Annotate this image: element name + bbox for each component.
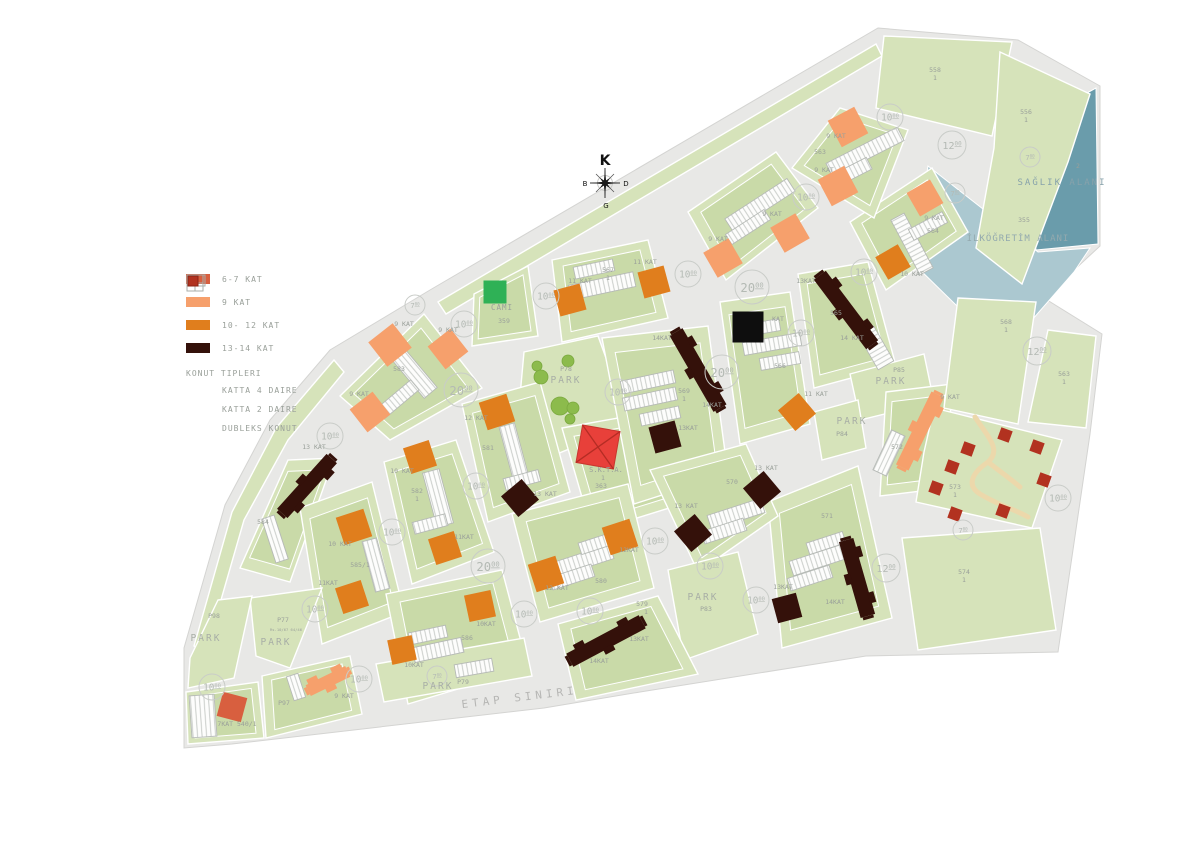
map-label: 580 [595, 577, 607, 585]
map-label: 581 [482, 444, 494, 452]
map-label: PARK [423, 681, 454, 692]
map-label: 568 [1000, 318, 1012, 326]
map-label: P77 [277, 616, 289, 624]
map-label: 13 KAT [302, 443, 326, 451]
map-label: 556 [1020, 108, 1032, 116]
map-label: 12 KAT [464, 414, 488, 422]
map-label: Rs.10/67 64/46 [270, 627, 303, 632]
map-label: P97 [278, 699, 290, 707]
map-label: 14KAT [589, 657, 609, 665]
building-skta [576, 425, 620, 469]
map-label: 1 [953, 491, 957, 499]
map-label: 574 [958, 568, 970, 576]
map-label: 12 KAT [545, 584, 569, 592]
tree-icon [551, 397, 569, 415]
map-label: 9 KAT [394, 320, 414, 328]
legend-konut-label: KATTA 4 DAIRE [222, 386, 298, 395]
legend-swatch [186, 343, 210, 353]
map-label: P84 [836, 430, 848, 438]
compass-D-label: D [623, 180, 628, 188]
legend-konut-item: DUBLEKS KONUT [186, 424, 336, 433]
master-plan-map: 1000120070070010002000100010001000700200… [0, 0, 1200, 850]
map-label: P98 [208, 612, 220, 620]
map-label: 13 KAT [754, 464, 778, 472]
map-label: 10 KAT [390, 467, 414, 475]
legend: 6-7 KAT9 KAT10- 12 KAT13-14 KAT KONUT TI… [186, 274, 336, 443]
legend-item: 6-7 KAT [186, 274, 336, 284]
map-label: 582 [411, 487, 423, 495]
map-label: P78 [560, 365, 572, 373]
building-mosque [484, 281, 507, 304]
map-label: 10 KAT [900, 270, 924, 278]
legend-konut-types: KATTA 4 DAIREKATTA 2 DAIREDUBLEKS KONUT [186, 386, 336, 433]
map-label: İLKÖĞRETİM ALANI [967, 232, 1070, 244]
building-kat1012 [464, 590, 496, 622]
map-label: S.K.T.A. [589, 466, 623, 474]
legend-item-label: 9 KAT [222, 298, 251, 307]
legend-konut-item: KATTA 2 DAIRE [186, 405, 336, 414]
map-label: 1 [415, 495, 419, 503]
map-label: 9 KAT [826, 132, 846, 140]
map-label: 14KAT [825, 598, 845, 606]
map-label: CAMI [491, 303, 513, 312]
map-label: 363 [595, 482, 607, 490]
map-label: 567 [602, 266, 614, 274]
legend-konut-label: KATTA 2 DAIRE [222, 405, 298, 414]
map-label: 566 [774, 362, 786, 370]
map-label: 14KAT [652, 334, 672, 342]
parcel-574 [902, 528, 1056, 650]
tree-icon [532, 361, 542, 371]
legend-item: 10- 12 KAT [186, 320, 336, 330]
map-label: 9 KAT [349, 390, 369, 398]
map-label: 13KAT [796, 277, 816, 285]
map-label: 9 KAT [762, 210, 782, 218]
map-label: 355 [1018, 216, 1030, 224]
map-label: 9 KAT [940, 393, 960, 401]
compass-B-label: B [583, 180, 588, 188]
map-label: 1 [606, 274, 610, 282]
map-label: 564 [927, 227, 939, 235]
map-label: 10KAT [404, 661, 424, 669]
map-label: 12KAT [619, 546, 639, 554]
legend-konut-label: DUBLEKS KONUT [222, 424, 298, 433]
map-label: PARK [837, 416, 868, 427]
map-label: 10 KAT [328, 540, 352, 548]
map-label: 13KAT [678, 424, 698, 432]
row-building [189, 694, 217, 738]
map-label: 13KAT [629, 635, 649, 643]
map-label: 563 [1058, 370, 1070, 378]
map-label: 9 KAT [334, 692, 354, 700]
legend-item: 13-14 KAT [186, 343, 336, 353]
legend-konut-title: KONUT TIPLERI [186, 369, 336, 378]
building-black [733, 312, 764, 343]
map-label: P85 [893, 366, 905, 374]
map-label: 13 KAT [533, 490, 557, 498]
tree-icon [534, 370, 548, 384]
map-label: 573 [949, 483, 961, 491]
legend-konut-item: KATTA 4 DAIRE [186, 386, 336, 395]
map-label: 1 [1062, 378, 1066, 386]
map-label: SAĞLIK ALANI [1017, 176, 1106, 188]
map-label: 11 KAT [804, 390, 828, 398]
map-label: 565 [830, 309, 842, 317]
legend-item: 9 KAT [186, 297, 336, 307]
map-label: 7KAT 540/1 [217, 720, 256, 728]
map-label: 2 [1076, 162, 1080, 170]
map-label: 1 [1004, 326, 1008, 334]
map-label: 1 [1024, 116, 1028, 124]
map-label: 572 [891, 443, 903, 451]
map-label: 10KAT [476, 620, 496, 628]
map-label: PARK [876, 376, 907, 387]
legend-item-label: 10- 12 KAT [222, 321, 280, 330]
legend-swatch [186, 320, 210, 330]
map-label: PARK [551, 375, 582, 386]
map-label: 1 [644, 608, 648, 616]
compass-G-label: G [603, 202, 608, 210]
map-label: 9 KAT [814, 166, 834, 174]
master-plan-canvas: 1000120070070010002000100010001000700200… [0, 0, 1200, 850]
map-label: 11KAT [318, 579, 338, 587]
map-label: PARK [261, 637, 292, 648]
legend-item-label: 13-14 KAT [222, 344, 274, 353]
map-label: 11 KAT [568, 277, 592, 285]
map-label: 558 [929, 66, 941, 74]
map-label: 571 [821, 512, 833, 520]
map-label: 569 [678, 387, 690, 395]
legend-item-label: 6-7 KAT [222, 275, 263, 284]
compass-K-label: K [600, 153, 612, 169]
map-label: 1 [682, 395, 686, 403]
tree-icon [567, 402, 579, 414]
legend-floor-categories: 6-7 KAT9 KAT10- 12 KAT13-14 KAT [186, 274, 336, 353]
map-label: 583 [393, 365, 405, 373]
map-label: PARK [191, 633, 222, 644]
map-label: 9 KAT [708, 235, 728, 243]
map-label: P79 [457, 678, 469, 686]
map-label: PARK [688, 592, 719, 603]
map-label: 11KAT [454, 533, 474, 541]
map-label: 359 [498, 317, 510, 325]
map-label: KAT [772, 315, 784, 323]
map-label: 579 [636, 600, 648, 608]
map-label: 13 KAT [674, 502, 698, 510]
map-label: 563 [814, 148, 826, 156]
map-label: 14 KAT [840, 334, 864, 342]
map-label: 1 [601, 474, 605, 482]
map-label: 9 KAT [924, 214, 944, 222]
map-label: 14KAT [702, 401, 722, 409]
map-label: 1 [962, 576, 966, 584]
legend-swatch [186, 297, 210, 307]
map-label: 584 [257, 518, 269, 526]
map-label: 585/1 [350, 561, 370, 569]
map-label: 13KAT [773, 583, 793, 591]
tree-icon [565, 414, 575, 424]
map-label: 570 [726, 478, 738, 486]
map-label: P83 [700, 605, 712, 613]
map-label: 586 [461, 634, 473, 642]
map-label: 11 KAT [633, 258, 657, 266]
map-label: 1 [933, 74, 937, 82]
map-label: 9 KAT [438, 326, 458, 334]
